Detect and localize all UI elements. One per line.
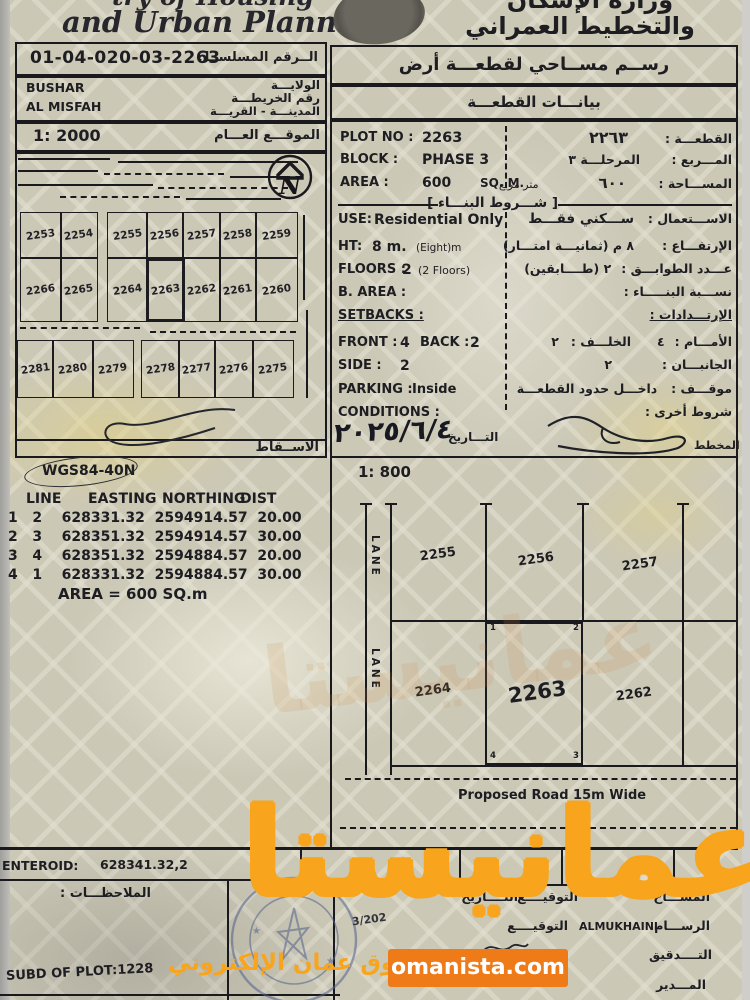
plot-number: 2256 xyxy=(150,227,181,243)
height-label: HT: xyxy=(338,240,362,255)
floors-label-ar: عـــدد الطوابـــق : xyxy=(621,261,732,276)
floors-value: 2 xyxy=(402,262,412,278)
back-value: 2 xyxy=(470,335,480,351)
serial-number: 01-04-020-03-2263 xyxy=(30,49,221,69)
svg-text:★: ★ xyxy=(252,926,261,937)
plot-cell: 2266 xyxy=(20,258,62,322)
parking-row-ar: موقـــف : داخـــل حدود القطعـــة xyxy=(518,381,732,396)
front-value: 4 xyxy=(400,335,410,351)
watermark-brand: عمانيستا xyxy=(242,792,750,914)
built-area-label-ar: نســـبة البنـــــاء : xyxy=(624,284,732,299)
plot-number: 2264 xyxy=(112,282,143,298)
centroid-label: ENTEROID: xyxy=(2,859,78,873)
plot-cell: 2253 xyxy=(20,212,62,258)
centroid-value: 628341.32,2 xyxy=(100,858,188,872)
height-row-ar: الإرتفـــاع : ٨ م (ثمانيـــة امتـــار) xyxy=(518,238,732,253)
height-value-ar: ٨ م (ثمانيـــة امتـــار) xyxy=(503,238,634,253)
back-value-ar: ٢ xyxy=(551,334,559,349)
area-value-ar: ٦٠٠ xyxy=(599,174,626,192)
plot-cell: 2259 xyxy=(255,212,298,258)
plot-number: 2257 xyxy=(186,227,217,243)
block-label-ar: المـــربع : xyxy=(654,152,732,167)
overview-footer-label: الاســقاط xyxy=(245,441,319,456)
back-label-ar: الخلـــف : xyxy=(571,334,631,349)
use-row-ar: الاســـتعمال : ســـكني فقـــط xyxy=(518,211,732,227)
planner-approval-signature xyxy=(528,408,698,456)
planner-label: المخطط xyxy=(694,440,740,453)
plot-cell: 2258 xyxy=(219,212,257,258)
overview-scale-label: الموقـــع العـــام xyxy=(215,129,320,144)
col-header-easting: EASTING xyxy=(88,491,156,507)
plot-cell: 2276 xyxy=(214,340,254,398)
plot-cell: 2257 xyxy=(182,212,221,258)
floors-row-ar: عـــدد الطوابـــق : ٢ (طــــابقين) xyxy=(518,261,732,276)
col-header-dist: DIST xyxy=(240,491,276,507)
area-label: AREA : xyxy=(340,176,389,191)
plot-no-value-ar: ٢٢٦٣ xyxy=(589,128,628,147)
coord-row: 4 1 628331.32 2594884.57 30.00 xyxy=(8,567,302,583)
notes-label: الملاحظـــات : xyxy=(60,887,151,902)
back-label: BACK : xyxy=(420,336,469,351)
plot-cell: 2255 xyxy=(107,212,148,258)
floors-note: (2 Floors) xyxy=(418,265,470,278)
town-value: AL MISFAH xyxy=(26,100,101,114)
block-row-ar: المـــربع : المرحلـــة ٣ xyxy=(518,152,732,167)
plot-no-label: PLOT NO : xyxy=(340,131,413,146)
built-area-label: B. AREA : xyxy=(338,286,406,301)
survey-title: رســم مســاحي لقطعـــة أرض xyxy=(340,55,728,76)
plot-number: 2265 xyxy=(64,282,95,298)
front-label-ar: الأمـــام : xyxy=(675,334,732,349)
road-centerline-upper xyxy=(345,778,736,780)
front-label: FRONT : xyxy=(338,336,397,351)
area-row-ar: المســـاحة : ٦٠٠ متر مربع xyxy=(442,174,732,192)
plot-cell: 2280 xyxy=(52,340,94,398)
plot-number: 2255 xyxy=(112,227,143,243)
wilaya-value: BUSHAR xyxy=(26,81,84,95)
setbacks-label-ar: الإرتـــدادات : xyxy=(650,307,732,322)
side-row-ar: الجانبـــان : ٢ xyxy=(518,357,732,372)
floors-label: FLOORS : xyxy=(338,263,406,278)
rules-divider-right xyxy=(558,204,732,206)
approval-date-handwritten: ٢٠٢٥/٦/٤ xyxy=(332,414,454,449)
plot-number: 2253 xyxy=(26,227,57,243)
coord-area-total: AREA = 600 SQ.m xyxy=(58,586,207,603)
plot-cell: 2261 xyxy=(219,258,257,322)
floors-value-ar: ٢ (طــــابقين) xyxy=(524,261,611,276)
plot-number: 2261 xyxy=(223,282,254,298)
plot-cell: 2265 xyxy=(60,258,98,322)
coord-row: 3 4 628351.32 2594884.57 20.00 xyxy=(8,548,302,564)
plot-cell: 2256 xyxy=(146,212,184,258)
col-header-northing: NORTHING xyxy=(162,491,245,507)
approval-date-label: التـــاريخ xyxy=(448,431,498,445)
plot-number: 2276 xyxy=(219,361,250,377)
plot-cell-highlight-2263: 2263 xyxy=(146,258,185,322)
town-label: المدينـــة - القريـــة xyxy=(215,105,320,118)
plot-number: 2278 xyxy=(145,361,176,377)
photographed-survey-document: try of Housing and Urban Planning وزارة … xyxy=(0,0,750,1000)
use-value-ar: ســـكني فقـــط xyxy=(528,211,634,227)
plot-number: 2263 xyxy=(150,282,181,298)
plot-cell: 2281 xyxy=(17,340,54,398)
built-area-row-ar: نســـبة البنـــــاء : xyxy=(518,284,732,299)
area-label-ar: المســـاحة : xyxy=(654,176,732,191)
side-value: 2 xyxy=(400,358,410,374)
audit-role-label: التــــدقيق xyxy=(649,948,712,962)
plot-no-value: 2263 xyxy=(422,130,462,147)
use-label: USE: xyxy=(338,213,372,228)
rules-divider-left xyxy=(338,204,438,206)
dashed-divider-top xyxy=(505,126,507,188)
height-note: (Eight)m xyxy=(416,242,461,254)
use-value: Residential Only xyxy=(374,212,503,228)
use-label-ar: الاســـتعمال : xyxy=(644,211,732,226)
block-label: BLOCK : xyxy=(340,153,398,168)
plot-number: 2254 xyxy=(64,227,95,243)
plot-no-row-ar: القطعـــة : ٢٢٦٣ xyxy=(518,128,732,147)
side-label-ar: الجانبـــان : xyxy=(662,357,732,372)
plot-data-header: بيانـــات القطعـــة xyxy=(340,94,728,111)
parking-label-ar: موقـــف : xyxy=(671,381,732,396)
parking-value-ar: داخـــل حدود القطعـــة xyxy=(517,381,657,396)
north-arrow-icon: N xyxy=(266,153,314,201)
height-value: 8 m. xyxy=(372,239,407,255)
plot-cell: 2277 xyxy=(178,340,216,398)
manager-role-label: المـــدير xyxy=(656,978,706,992)
overview-scale: 1: 2000 xyxy=(33,127,101,145)
rules-header: [ شـــروط البنـــاء ] xyxy=(438,196,558,212)
plot-cell: 2262 xyxy=(183,258,221,322)
plot-number: 2258 xyxy=(223,227,254,243)
block-value-ar: المرحلـــة ٣ xyxy=(568,152,640,167)
serial-number-label: الــرقم المسلســل xyxy=(200,51,318,66)
plot-number: 2266 xyxy=(26,282,57,298)
plot-cell: 2275 xyxy=(252,340,294,398)
setbacks-label: SETBACKS : xyxy=(338,309,424,324)
plot-number: 2279 xyxy=(98,361,129,377)
height-label-ar: الإرتفـــاع : xyxy=(644,238,732,253)
plot-number: 2275 xyxy=(258,361,289,377)
col-header-line: LINE xyxy=(26,491,61,507)
planner-signature-squiggle xyxy=(95,402,245,452)
plot-no-label-ar: القطعـــة : xyxy=(654,131,732,146)
parking-label: PARKING : xyxy=(338,383,413,398)
coord-row: 1 2 628331.32 2594914.57 20.00 xyxy=(8,510,302,526)
block-value: PHASE 3 xyxy=(422,152,489,168)
plot-number: 2277 xyxy=(182,361,213,377)
plot-cell: 2278 xyxy=(141,340,180,398)
front-back-row-ar: الأمـــام : ٤ الخلـــف : ٢ xyxy=(518,334,732,349)
corner-mark-4: 4 xyxy=(490,752,496,762)
plot-cell: 2264 xyxy=(107,258,148,322)
plot-cell: 2254 xyxy=(60,212,98,258)
svg-text:N: N xyxy=(278,171,302,200)
parking-value: Inside xyxy=(412,383,456,398)
detail-scale: 1: 800 xyxy=(358,464,411,481)
watermark-tagline: سوق عمان الإلكتروني xyxy=(168,950,418,976)
lane-label-upper: LANE xyxy=(369,535,381,578)
coord-row: 2 3 628351.32 2594914.57 30.00 xyxy=(8,529,302,545)
side-value-ar: ٢ xyxy=(604,357,612,372)
plot-cell: 2260 xyxy=(255,258,298,322)
plot-number: 2281 xyxy=(20,361,51,377)
plot-number: 2259 xyxy=(261,227,292,243)
plot-number: 2260 xyxy=(261,282,292,298)
corner-mark-3: 3 xyxy=(573,752,579,762)
front-value-ar: ٤ xyxy=(657,334,665,349)
plot-number: 2280 xyxy=(58,361,89,377)
ministry-name-arabic-line2: والتخطيط العمراني xyxy=(440,13,720,41)
setbacks-row-ar: الإرتـــدادات : xyxy=(518,307,732,322)
watermark-site-url: omanista.com xyxy=(391,955,565,980)
watermark-site-button: omanista.com xyxy=(388,949,568,987)
plot-number: 2262 xyxy=(187,282,218,298)
side-label: SIDE : xyxy=(338,359,382,374)
plot-cell: 2279 xyxy=(92,340,134,398)
